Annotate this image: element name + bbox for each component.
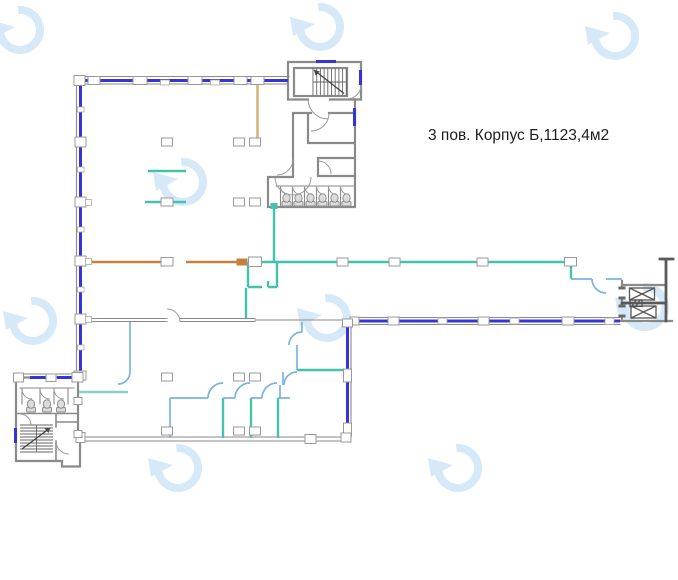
floor-plan-page: 3 пов. Корпус Б,1123,4м2 (0, 0, 678, 580)
elevator-icon (630, 288, 655, 300)
toilet-icon (306, 194, 315, 206)
exterior-window-walls (16, 62, 621, 444)
toilet-icon (57, 400, 66, 412)
wc-top-block (281, 186, 352, 206)
toilet-icon (27, 400, 36, 412)
floor-label: 3 пов. Корпус Б,1123,4м2 (428, 127, 609, 144)
stairs-top-icon (313, 69, 346, 96)
toilet-icon (330, 194, 339, 206)
toilet-icon (43, 400, 52, 412)
toilet-icon (318, 194, 327, 206)
watermark-logo (153, 160, 205, 203)
watermark-logo (0, 8, 42, 51)
floor-plan: 3 пов. Корпус Б,1123,4м2 (0, 0, 678, 580)
watermark-logo (148, 446, 200, 489)
watermark-logo (297, 296, 349, 339)
wc-bottom-block (22, 388, 68, 412)
watermark-logo (290, 5, 342, 48)
watermark-logo (428, 446, 480, 489)
stairs-bottom-icon (20, 425, 53, 452)
toilet-icon (282, 194, 291, 206)
watermark-logo (3, 299, 55, 342)
toilet-icon (342, 194, 351, 206)
watermark-logo (585, 14, 637, 57)
elevator-icon (631, 306, 656, 318)
toilet-icon (294, 194, 303, 206)
